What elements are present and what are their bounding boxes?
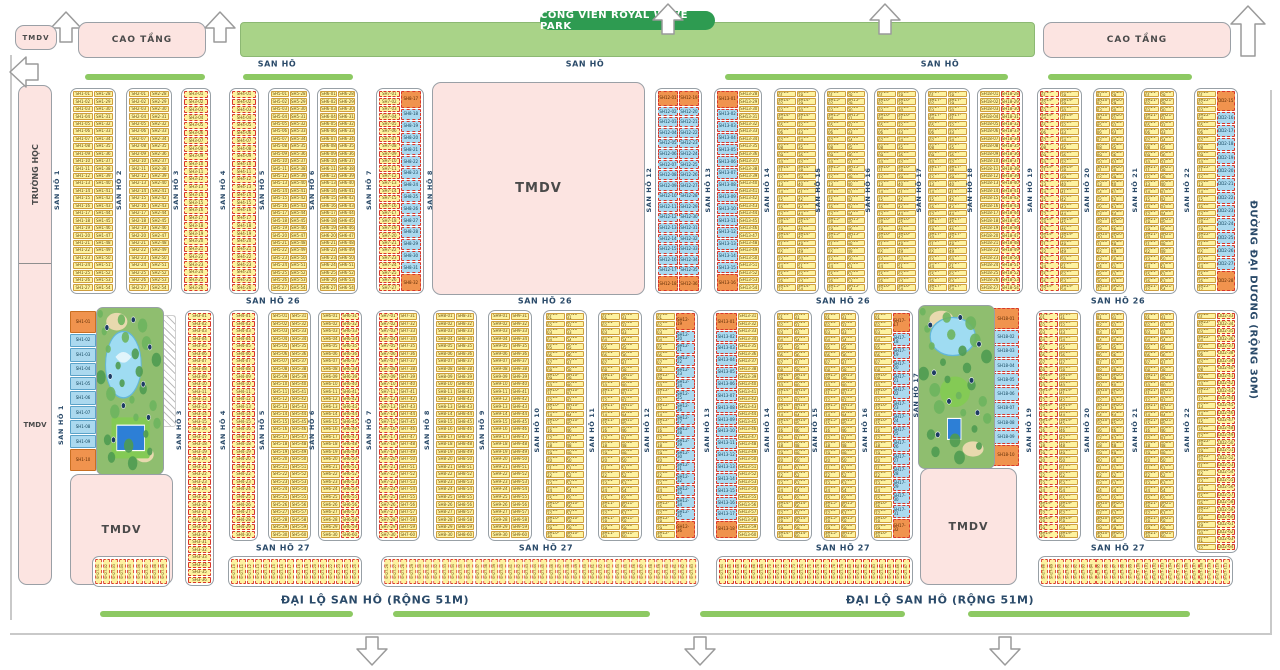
lot-cell[interactable]: SH11-50 bbox=[621, 456, 640, 463]
lot-cell[interactable]: SH7-58 bbox=[399, 516, 418, 523]
lot-cell[interactable]: SH6-28 bbox=[338, 91, 355, 97]
lot-cell[interactable]: SH6-57 bbox=[341, 509, 360, 516]
lot-cell[interactable]: SH11-51 bbox=[621, 464, 640, 471]
lot-cell[interactable]: SH2-29 bbox=[150, 98, 170, 104]
lot-cell[interactable]: SH8-25 bbox=[436, 494, 455, 501]
lot-cell[interactable]: SH5-14 bbox=[271, 188, 289, 194]
lot-cell[interactable]: SH16-25 bbox=[877, 270, 896, 276]
lot-cell[interactable]: SH7-15 bbox=[379, 418, 398, 425]
lot-cell[interactable]: SH1-14 bbox=[73, 188, 93, 194]
lot-cell[interactable]: SH16-10 bbox=[874, 381, 892, 388]
lot-cell[interactable]: SH9-32 bbox=[511, 321, 530, 328]
lot-cell[interactable]: SH11-36 bbox=[621, 351, 640, 358]
lot-cell[interactable]: SH27-52 bbox=[598, 559, 605, 584]
lot-cell[interactable]: SH11-59 bbox=[621, 524, 640, 531]
lot-cell[interactable]: SH27-95 bbox=[1096, 559, 1103, 584]
lot-cell[interactable]: SH15-52 bbox=[841, 471, 857, 478]
lot-cell[interactable]: SH17-31 bbox=[893, 505, 911, 517]
lot-cell[interactable]: SH13-13 bbox=[716, 462, 737, 473]
lot-cell[interactable]: SH19-60 bbox=[1059, 531, 1078, 538]
lot-cell[interactable]: SH3-04 bbox=[188, 336, 211, 343]
lot-cell[interactable]: SH21-10 bbox=[1144, 158, 1159, 164]
lot-cell[interactable]: SH20-19 bbox=[1096, 449, 1110, 456]
lot-cell[interactable]: SH13-41 bbox=[739, 188, 760, 194]
lot-cell[interactable]: SH22-16 bbox=[1197, 425, 1216, 431]
lot-cell[interactable]: SH9-24 bbox=[491, 486, 510, 493]
lot-cell[interactable]: SH14-15 bbox=[777, 195, 796, 201]
lot-cell[interactable]: SH14-46 bbox=[794, 426, 810, 433]
lot-cell[interactable]: SH21-39 bbox=[1160, 373, 1175, 380]
lot-cell[interactable]: SH18-09 bbox=[980, 151, 1000, 157]
lot-cell[interactable]: SH17-05 bbox=[928, 121, 947, 127]
lot-cell[interactable]: SH13-02 bbox=[717, 109, 738, 120]
lot-cell[interactable]: SH27-26 bbox=[384, 559, 391, 584]
lot-cell[interactable]: SH18-40 bbox=[1001, 180, 1021, 186]
lot-cell[interactable]: SH10-19 bbox=[546, 449, 565, 456]
lot-cell[interactable]: SH1-04 bbox=[70, 363, 96, 376]
lot-cell[interactable]: SH10-45 bbox=[566, 418, 585, 425]
lot-cell[interactable]: SH12-25 bbox=[679, 160, 699, 170]
park-left[interactable] bbox=[96, 307, 164, 475]
lot-cell[interactable]: SH11-13 bbox=[601, 403, 620, 410]
lot-cell[interactable]: SH20-50 bbox=[1111, 456, 1125, 463]
lot-cell[interactable]: SH1-29 bbox=[94, 98, 114, 104]
lot-cell[interactable]: SH20-34 bbox=[1111, 136, 1125, 142]
lot-cell[interactable]: SH13-36 bbox=[739, 151, 760, 157]
lot-cell[interactable]: SH27-12 bbox=[247, 559, 254, 584]
lot-cell[interactable]: SH6-10 bbox=[320, 158, 337, 164]
lot-cell[interactable]: SH27-94 bbox=[1089, 559, 1096, 584]
lot-cell[interactable]: SH14-25 bbox=[777, 494, 793, 501]
lot-cell[interactable]: SH27-69 bbox=[759, 559, 766, 584]
lot-cell[interactable]: SH13-04 bbox=[716, 355, 737, 366]
lot-cell[interactable]: SH27-16 bbox=[279, 559, 286, 584]
lot-cell[interactable]: SH3-16 bbox=[188, 426, 211, 433]
lot-cell[interactable]: SH5-40 bbox=[290, 381, 308, 388]
lot-cell[interactable]: SH5-10 bbox=[271, 158, 289, 164]
lot-cell[interactable]: SH22-11 bbox=[1197, 165, 1216, 171]
lot-cell[interactable]: SH2-39 bbox=[150, 173, 170, 179]
lot-cell[interactable]: SH19-50 bbox=[1060, 255, 1079, 261]
lot-cell[interactable]: SH17-02 bbox=[928, 98, 947, 104]
lot-cell[interactable]: SH17-10 bbox=[928, 158, 947, 164]
lot-cell[interactable]: SH16-27 bbox=[877, 284, 896, 290]
lot-cell[interactable]: SH19-06 bbox=[1040, 128, 1059, 134]
lot-cell[interactable]: SH16-05 bbox=[874, 343, 892, 350]
lot-cell[interactable]: SH4-04 bbox=[232, 114, 256, 121]
lot-cell[interactable]: SH18-16 bbox=[980, 203, 1000, 209]
lot-cell[interactable]: SH7-24 bbox=[379, 262, 400, 268]
lot-cell[interactable]: SH15-16 bbox=[824, 426, 840, 433]
lot-cell[interactable]: SH15-28 bbox=[824, 516, 840, 523]
lot-cell[interactable]: SH27-53 bbox=[606, 559, 613, 584]
lot-cell[interactable]: SH18-39 bbox=[1001, 173, 1021, 179]
lot-cell[interactable]: SH5-25 bbox=[271, 494, 289, 501]
lot-cell[interactable]: SH13-31 bbox=[739, 113, 760, 119]
lot-cell[interactable]: SH18-05 bbox=[980, 121, 1000, 127]
lot-cell[interactable]: SH7-08 bbox=[379, 143, 400, 149]
lot-cell[interactable]: SH17-23 bbox=[893, 400, 911, 412]
lot-cell[interactable]: SH2-03 bbox=[129, 106, 149, 112]
lot-cell[interactable]: SH9-55 bbox=[511, 494, 530, 501]
lot-cell[interactable]: SH15-34 bbox=[847, 136, 866, 142]
lot-cell[interactable]: SH27-62 bbox=[680, 559, 687, 584]
lot-cell[interactable]: SH1-12 bbox=[73, 173, 93, 179]
lot-cell[interactable]: SH15-53 bbox=[847, 277, 866, 283]
lot-cell[interactable]: SH6-23 bbox=[321, 479, 340, 486]
lot-cell[interactable]: SH17-11 bbox=[928, 165, 947, 171]
lot-cell[interactable]: SH12-17 bbox=[658, 266, 678, 276]
lot-cell[interactable]: SH27-108 bbox=[1199, 559, 1206, 584]
lot-cell[interactable]: SH7-42 bbox=[399, 396, 418, 403]
lot-cell[interactable]: SH2-23 bbox=[129, 255, 149, 261]
lot-cell[interactable]: SH5-51 bbox=[290, 262, 308, 268]
lot-cell[interactable]: SH17-46 bbox=[948, 225, 967, 231]
lot-cell[interactable]: SH20-37 bbox=[1111, 158, 1125, 164]
lot-cell[interactable]: SH22-23 bbox=[1197, 477, 1216, 483]
lot-cell[interactable]: SH16-22 bbox=[874, 471, 892, 478]
lot-cell[interactable]: SH14-07 bbox=[777, 358, 793, 365]
lot-cell[interactable]: SH5-39 bbox=[290, 173, 308, 179]
area-tmdv-bottom-right[interactable]: TMDV bbox=[920, 468, 1017, 585]
lot-cell[interactable]: SH17-45 bbox=[948, 217, 967, 223]
lot-cell[interactable]: SH21-30 bbox=[1144, 531, 1159, 538]
lot-cell[interactable]: SH13-44 bbox=[739, 210, 760, 216]
lot-cell[interactable]: SH22-02 bbox=[1197, 98, 1216, 104]
lot-cell[interactable]: SH15-52 bbox=[847, 270, 866, 276]
lot-cell[interactable]: SH11-04 bbox=[601, 336, 620, 343]
lot-cell[interactable]: SH22-08 bbox=[1197, 365, 1216, 371]
lot-cell[interactable]: SH5-35 bbox=[290, 343, 308, 350]
lot-cell[interactable]: SH4-19 bbox=[232, 449, 255, 456]
lot-cell[interactable]: SH18-43 bbox=[1001, 203, 1021, 209]
lot-cell[interactable]: SH20-15 bbox=[1096, 195, 1110, 201]
lot-cell[interactable]: SH7-46 bbox=[399, 426, 418, 433]
lot-cell[interactable]: SH18-30 bbox=[1001, 106, 1021, 112]
lot-cell[interactable]: SH21-04 bbox=[1144, 336, 1159, 343]
lot-cell[interactable]: SH6-29 bbox=[338, 98, 355, 104]
lot-cell[interactable]: SH27-05 bbox=[127, 559, 134, 584]
lot-cell[interactable]: SH12-05 bbox=[658, 139, 678, 149]
lot-cell[interactable]: SH15-48 bbox=[847, 240, 866, 246]
lot-cell[interactable]: SH13-57 bbox=[738, 509, 759, 516]
lot-cell[interactable]: SH20-18 bbox=[1096, 217, 1110, 223]
lot-cell[interactable]: SH4-14 bbox=[232, 411, 255, 418]
lot-cell[interactable]: SH6-41 bbox=[338, 188, 355, 194]
lot-cell[interactable]: SH22-18 bbox=[1197, 439, 1216, 445]
lot-cell[interactable]: SH7-10 bbox=[379, 158, 400, 164]
lot-cell[interactable]: SH8-23 bbox=[436, 479, 455, 486]
lot-cell[interactable]: SH27-75 bbox=[807, 559, 814, 584]
lot-cell[interactable]: SH3-21 bbox=[188, 464, 211, 471]
lot-cell[interactable]: SH20-29 bbox=[1111, 98, 1125, 104]
lot-cell[interactable]: SH21-54 bbox=[1160, 284, 1175, 290]
lot-cell[interactable]: SH10-06 bbox=[546, 351, 565, 358]
lot-cell[interactable]: SH27-51 bbox=[590, 559, 597, 584]
lot-cell[interactable]: SH20-56 bbox=[1111, 501, 1125, 508]
lot-cell[interactable]: SH18-27 bbox=[980, 284, 1000, 290]
lot-cell[interactable]: SH17-21 bbox=[928, 240, 947, 246]
lot-cell[interactable]: DD2-38 bbox=[1217, 350, 1236, 356]
lot-cell[interactable]: DD2-64 bbox=[1217, 544, 1236, 550]
lot-cell[interactable]: SH19-38 bbox=[1060, 165, 1079, 171]
lot-cell[interactable]: SH20-49 bbox=[1111, 449, 1125, 456]
lot-cell[interactable]: SH13-14 bbox=[717, 251, 738, 262]
lot-cell[interactable]: SH13-52 bbox=[739, 270, 760, 276]
lot-cell[interactable]: SH1-36 bbox=[94, 151, 114, 157]
lot-cell[interactable]: SH14-52 bbox=[797, 270, 816, 276]
lot-cell[interactable]: SH9-05 bbox=[491, 343, 510, 350]
lot-cell[interactable]: SH18-44 bbox=[1001, 210, 1021, 216]
lot-cell[interactable]: SH13-10 bbox=[716, 426, 737, 437]
lot-cell[interactable]: SH17-29 bbox=[893, 479, 911, 491]
lot-cell[interactable]: SH10-20 bbox=[546, 456, 565, 463]
lot-cell[interactable]: SH8-55 bbox=[456, 494, 475, 501]
lot-cell[interactable]: SH14-02 bbox=[777, 321, 793, 328]
lot-cell[interactable]: SH15-12 bbox=[824, 396, 840, 403]
lot-cell[interactable]: SH9-40 bbox=[511, 381, 530, 388]
lot-cell[interactable]: SH27-42 bbox=[516, 559, 523, 584]
lot-cell[interactable]: SH5-34 bbox=[290, 336, 308, 343]
lot-cell[interactable]: SH8-40 bbox=[456, 381, 475, 388]
lot-cell[interactable]: SH6-26 bbox=[320, 277, 337, 283]
lot-cell[interactable]: SH9-47 bbox=[511, 434, 530, 441]
lot-cell[interactable]: SH16-49 bbox=[897, 247, 916, 253]
lot-cell[interactable]: SH9-34 bbox=[511, 336, 530, 343]
lot-cell[interactable]: SH9-04 bbox=[491, 336, 510, 343]
lot-cell[interactable]: SH14-38 bbox=[794, 366, 810, 373]
lot-cell[interactable]: SH1-44 bbox=[94, 210, 114, 216]
lot-cell[interactable]: SH1-41 bbox=[94, 188, 114, 194]
lot-cell[interactable]: SH10-08 bbox=[546, 366, 565, 373]
lot-cell[interactable]: SH6-38 bbox=[338, 165, 355, 171]
lot-cell[interactable]: SH15-38 bbox=[841, 366, 857, 373]
lot-cell[interactable]: SH1-13 bbox=[73, 180, 93, 186]
lot-cell[interactable]: SH4-22 bbox=[232, 253, 256, 260]
lot-cell[interactable]: SH9-58 bbox=[511, 516, 530, 523]
lot-cell[interactable]: SH17-32 bbox=[948, 121, 967, 127]
lot-cell[interactable]: SH19-13 bbox=[1040, 180, 1059, 186]
lot-cell[interactable]: SH6-16 bbox=[321, 426, 340, 433]
lot-cell[interactable]: SH20-09 bbox=[1096, 151, 1110, 157]
lot-cell[interactable]: SH3-11 bbox=[188, 388, 211, 395]
lot-cell[interactable]: SH10-03 bbox=[546, 328, 565, 335]
lot-cell[interactable]: SH12-27 bbox=[679, 181, 699, 191]
lot-cell[interactable]: SH20-11 bbox=[1096, 165, 1110, 171]
lot-cell[interactable]: SH1-33 bbox=[94, 128, 114, 134]
lot-cell[interactable]: SH22-03 bbox=[1197, 328, 1216, 334]
lot-cell[interactable]: SH5-42 bbox=[290, 396, 308, 403]
lot-cell[interactable]: SH19-29 bbox=[1060, 98, 1079, 104]
lot-cell[interactable]: SH16-48 bbox=[897, 240, 916, 246]
lot-cell[interactable]: SH14-04 bbox=[777, 113, 796, 119]
lot-cell[interactable]: SH9-11 bbox=[491, 388, 510, 395]
lot-cell[interactable]: SH15-33 bbox=[847, 128, 866, 134]
lot-cell[interactable]: SH7-16 bbox=[379, 426, 398, 433]
lot-cell[interactable]: SH7-26 bbox=[379, 277, 400, 283]
lot-cell[interactable]: SH12-01 bbox=[656, 313, 675, 320]
lot-cell[interactable]: SH27-40 bbox=[499, 559, 506, 584]
lot-cell[interactable]: SH15-59 bbox=[841, 524, 857, 531]
lot-cell[interactable]: SH10-23 bbox=[546, 479, 565, 486]
lot-cell[interactable]: SH17-28 bbox=[893, 466, 911, 478]
lot-cell[interactable]: SH10-30 bbox=[546, 531, 565, 538]
lot-cell[interactable]: SH6-44 bbox=[341, 411, 360, 418]
lot-cell[interactable]: SH10-27 bbox=[546, 509, 565, 516]
lot-cell[interactable]: SH13-59 bbox=[738, 524, 759, 531]
lot-cell[interactable]: SH16-18 bbox=[877, 217, 896, 223]
lot-cell[interactable]: SH21-15 bbox=[1144, 195, 1159, 201]
lot-cell[interactable]: SH19-05 bbox=[1039, 343, 1058, 350]
lot-cell[interactable]: SH9-51 bbox=[511, 464, 530, 471]
lot-cell[interactable]: SH11-02 bbox=[601, 321, 620, 328]
lot-cell[interactable]: SH17-27 bbox=[893, 453, 911, 465]
lot-cell[interactable]: SH15-48 bbox=[841, 441, 857, 448]
lot-cell[interactable]: SH20-27 bbox=[1096, 509, 1110, 516]
lot-cell[interactable]: SH20-16 bbox=[1096, 426, 1110, 433]
lot-cell[interactable]: SH6-08 bbox=[321, 366, 340, 373]
lot-cell[interactable]: SH14-36 bbox=[794, 351, 810, 358]
lot-cell[interactable]: SH14-14 bbox=[777, 411, 793, 418]
lot-cell[interactable]: SH21-37 bbox=[1160, 358, 1175, 365]
lot-cell[interactable]: SH6-33 bbox=[338, 128, 355, 134]
lot-cell[interactable]: DD2-49 bbox=[1217, 432, 1236, 438]
lot-cell[interactable]: SH19-18 bbox=[1040, 217, 1059, 223]
lot-cell[interactable]: SH5-52 bbox=[290, 471, 308, 478]
lot-cell[interactable]: SH12-22 bbox=[679, 128, 699, 138]
lot-cell[interactable]: SH8-33 bbox=[456, 328, 475, 335]
lot-cell[interactable]: SH15-09 bbox=[824, 373, 840, 380]
lot-cell[interactable]: SH7-13 bbox=[379, 180, 400, 186]
lot-cell[interactable]: SH1-20 bbox=[73, 232, 93, 238]
lot-cell[interactable]: SH4-06 bbox=[232, 130, 256, 137]
lot-cell[interactable]: SH13-29 bbox=[739, 98, 760, 104]
lot-cell[interactable]: SH7-02 bbox=[379, 98, 400, 104]
lot-cell[interactable]: SH13-48 bbox=[739, 240, 760, 246]
lot-cell[interactable]: SH4-03 bbox=[232, 106, 256, 113]
lot-cell[interactable]: SH3-35 bbox=[188, 569, 211, 576]
lot-cell[interactable]: SH3-28 bbox=[188, 516, 211, 523]
lot-cell[interactable]: SH1-05 bbox=[73, 121, 93, 127]
lot-cell[interactable]: SH21-14 bbox=[1144, 188, 1159, 194]
lot-cell[interactable]: SH1-43 bbox=[94, 203, 114, 209]
lot-cell[interactable]: SH27-76 bbox=[815, 559, 822, 584]
lot-cell[interactable]: SH27-03 bbox=[111, 559, 118, 584]
lot-cell[interactable]: SH21-19 bbox=[1144, 449, 1159, 456]
lot-cell[interactable]: SH15-05 bbox=[824, 343, 840, 350]
lot-cell[interactable]: SH13-49 bbox=[739, 247, 760, 253]
lot-cell[interactable]: SH21-32 bbox=[1160, 121, 1175, 127]
lot-cell[interactable]: SH3-05 bbox=[188, 343, 211, 350]
lot-cell[interactable]: DD2-59 bbox=[1217, 506, 1236, 512]
lot-cell[interactable]: SH21-26 bbox=[1144, 277, 1159, 283]
lot-cell[interactable]: SH22-11 bbox=[1197, 387, 1216, 393]
lot-cell[interactable]: SH13-04 bbox=[717, 133, 738, 144]
lot-cell[interactable]: SH21-31 bbox=[1160, 313, 1175, 320]
lot-cell[interactable]: SH4-05 bbox=[232, 122, 256, 129]
lot-cell[interactable]: SH19-23 bbox=[1040, 255, 1059, 261]
lot-cell[interactable]: SH4-14 bbox=[232, 192, 256, 199]
lot-cell[interactable]: SH12-15 bbox=[656, 418, 675, 425]
lot-cell[interactable]: SH4-28 bbox=[232, 516, 255, 523]
lot-cell[interactable]: SH21-09 bbox=[1144, 151, 1159, 157]
lot-cell[interactable]: SH8-42 bbox=[456, 396, 475, 403]
lot-cell[interactable]: SH16-34 bbox=[897, 136, 916, 142]
lot-cell[interactable]: SH2-48 bbox=[150, 240, 170, 246]
lot-cell[interactable]: SH13-39 bbox=[739, 173, 760, 179]
lot-cell[interactable]: SH11-19 bbox=[601, 449, 620, 456]
lot-cell[interactable]: SH17-36 bbox=[948, 151, 967, 157]
lot-cell[interactable]: SH5-53 bbox=[290, 479, 308, 486]
lot-cell[interactable]: SH19-32 bbox=[1059, 321, 1078, 328]
lot-cell[interactable]: SH5-04 bbox=[271, 113, 289, 119]
lot-cell[interactable]: SH5-31 bbox=[290, 313, 308, 320]
lot-cell[interactable]: SH6-25 bbox=[321, 494, 340, 501]
lot-cell[interactable]: SH20-46 bbox=[1111, 426, 1125, 433]
lot-cell[interactable]: SH17-27 bbox=[928, 284, 947, 290]
lot-cell[interactable]: SH19-14 bbox=[1040, 188, 1059, 194]
lot-cell[interactable]: SH15-46 bbox=[841, 426, 857, 433]
lot-cell[interactable]: SH20-30 bbox=[1111, 106, 1125, 112]
lot-cell[interactable]: SH11-24 bbox=[601, 486, 620, 493]
lot-cell[interactable]: SH3-14 bbox=[184, 192, 208, 199]
lot-cell[interactable]: SH19-07 bbox=[1040, 136, 1059, 142]
lot-cell[interactable]: SH14-02 bbox=[777, 98, 796, 104]
lot-cell[interactable]: SH6-34 bbox=[338, 136, 355, 142]
lot-cell[interactable]: SH9-50 bbox=[511, 456, 530, 463]
lot-cell[interactable]: SH5-13 bbox=[271, 403, 289, 410]
lot-cell[interactable]: SH15-21 bbox=[827, 240, 846, 246]
lot-cell[interactable]: SH8-47 bbox=[456, 434, 475, 441]
lot-cell[interactable]: SH27-74 bbox=[799, 559, 806, 584]
lot-cell[interactable]: SH21-33 bbox=[1160, 128, 1175, 134]
lot-cell[interactable]: SH20-12 bbox=[1096, 396, 1110, 403]
lot-cell[interactable]: SH7-08 bbox=[379, 366, 398, 373]
lot-cell[interactable]: SH13-14 bbox=[716, 473, 737, 484]
lot-cell[interactable]: SH5-46 bbox=[290, 225, 308, 231]
lot-cell[interactable]: SH11-03 bbox=[601, 328, 620, 335]
lot-cell[interactable]: SH7-15 bbox=[379, 195, 400, 201]
lot-cell[interactable]: SH21-27 bbox=[1144, 284, 1159, 290]
lot-cell[interactable]: SH19-21 bbox=[1039, 464, 1058, 471]
lot-cell[interactable]: SH16-26 bbox=[877, 277, 896, 283]
lot-cell[interactable]: SH6-08 bbox=[320, 143, 337, 149]
lot-cell[interactable]: SH17-39 bbox=[948, 173, 967, 179]
lot-cell[interactable]: SH17-31 bbox=[948, 113, 967, 119]
lot-cell[interactable]: SH6-14 bbox=[321, 411, 340, 418]
lot-cell[interactable]: DD2-22 bbox=[1217, 192, 1236, 204]
lot-cell[interactable]: SH12-02 bbox=[658, 107, 678, 117]
lot-cell[interactable]: SH7-21 bbox=[379, 464, 398, 471]
lot-cell[interactable]: SH19-19 bbox=[1039, 449, 1058, 456]
area-cao-tang-right[interactable]: CAO TẦNG bbox=[1043, 22, 1231, 58]
lot-cell[interactable]: SH16-23 bbox=[874, 479, 892, 486]
lot-cell[interactable]: SH6-18 bbox=[320, 217, 337, 223]
lot-cell[interactable]: SH6-49 bbox=[341, 449, 360, 456]
lot-cell[interactable]: SH3-30 bbox=[188, 531, 211, 538]
lot-cell[interactable]: SH1-26 bbox=[73, 277, 93, 283]
lot-cell[interactable]: SH21-20 bbox=[1144, 232, 1159, 238]
lot-cell[interactable]: SH5-17 bbox=[271, 434, 289, 441]
lot-cell[interactable]: SH7-49 bbox=[399, 449, 418, 456]
lot-cell[interactable]: SH11-11 bbox=[601, 388, 620, 395]
lot-cell[interactable]: SH3-01 bbox=[184, 91, 208, 98]
lot-cell[interactable]: SH7-30 bbox=[379, 531, 398, 538]
lot-cell[interactable]: SH16-03 bbox=[877, 106, 896, 112]
lot-cell[interactable]: SH5-49 bbox=[290, 247, 308, 253]
lot-cell[interactable]: SH3-02 bbox=[188, 321, 211, 328]
lot-cell[interactable]: SH22-22 bbox=[1197, 247, 1216, 253]
